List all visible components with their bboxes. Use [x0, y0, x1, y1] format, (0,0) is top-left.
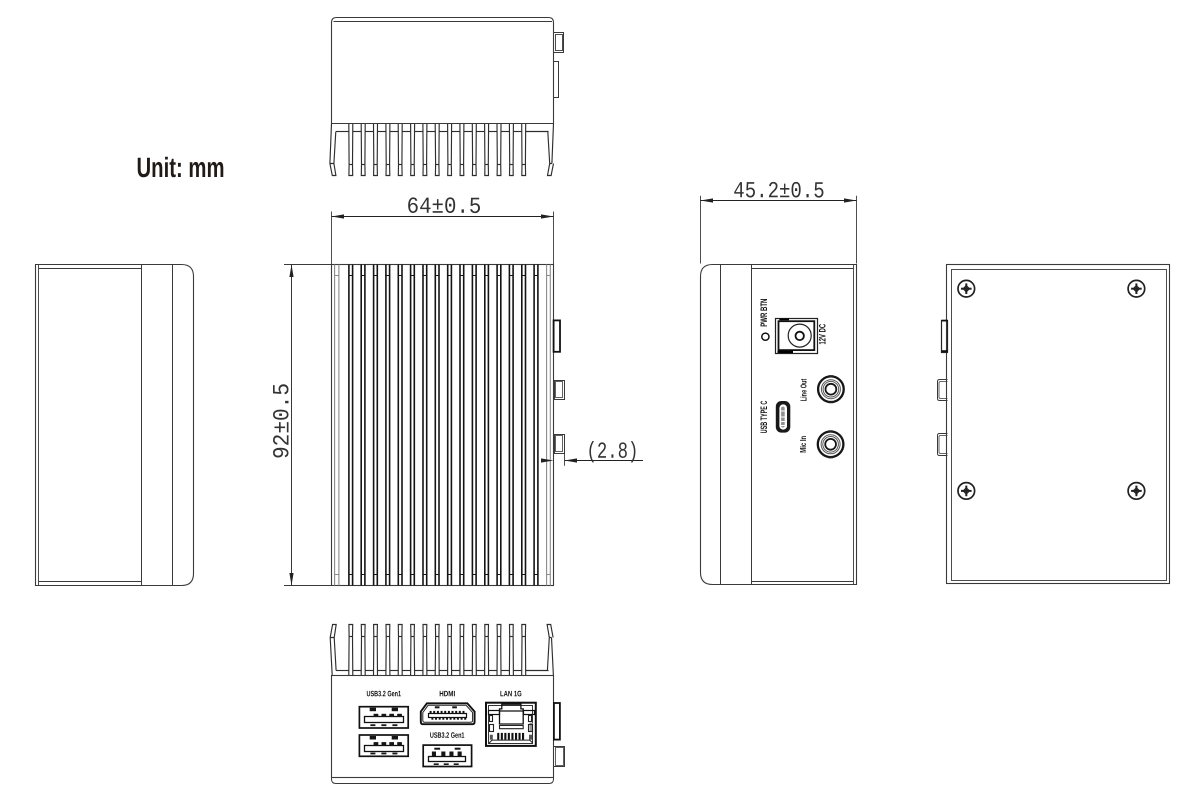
svg-text:92±0.5: 92±0.5 — [269, 383, 295, 459]
svg-text:HDMI: HDMI — [439, 689, 455, 698]
svg-text:USB3.2 Gen1: USB3.2 Gen1 — [366, 689, 401, 698]
svg-text:45.2±0.5: 45.2±0.5 — [733, 178, 824, 204]
svg-text:12V DC: 12V DC — [817, 324, 827, 345]
svg-text:PWR BTN: PWR BTN — [759, 299, 769, 327]
svg-text:Unit: mm: Unit: mm — [136, 152, 224, 183]
svg-text:Mic In: Mic In — [799, 436, 808, 453]
svg-text:Line Out: Line Out — [800, 379, 809, 402]
svg-text:USB TYPE C: USB TYPE C — [759, 400, 769, 433]
svg-text:(2.8): (2.8) — [586, 439, 638, 465]
svg-text:USB3.2 Gen1: USB3.2 Gen1 — [430, 731, 465, 740]
svg-text:64±0.5: 64±0.5 — [407, 194, 482, 220]
svg-text:LAN 1G: LAN 1G — [500, 689, 522, 698]
